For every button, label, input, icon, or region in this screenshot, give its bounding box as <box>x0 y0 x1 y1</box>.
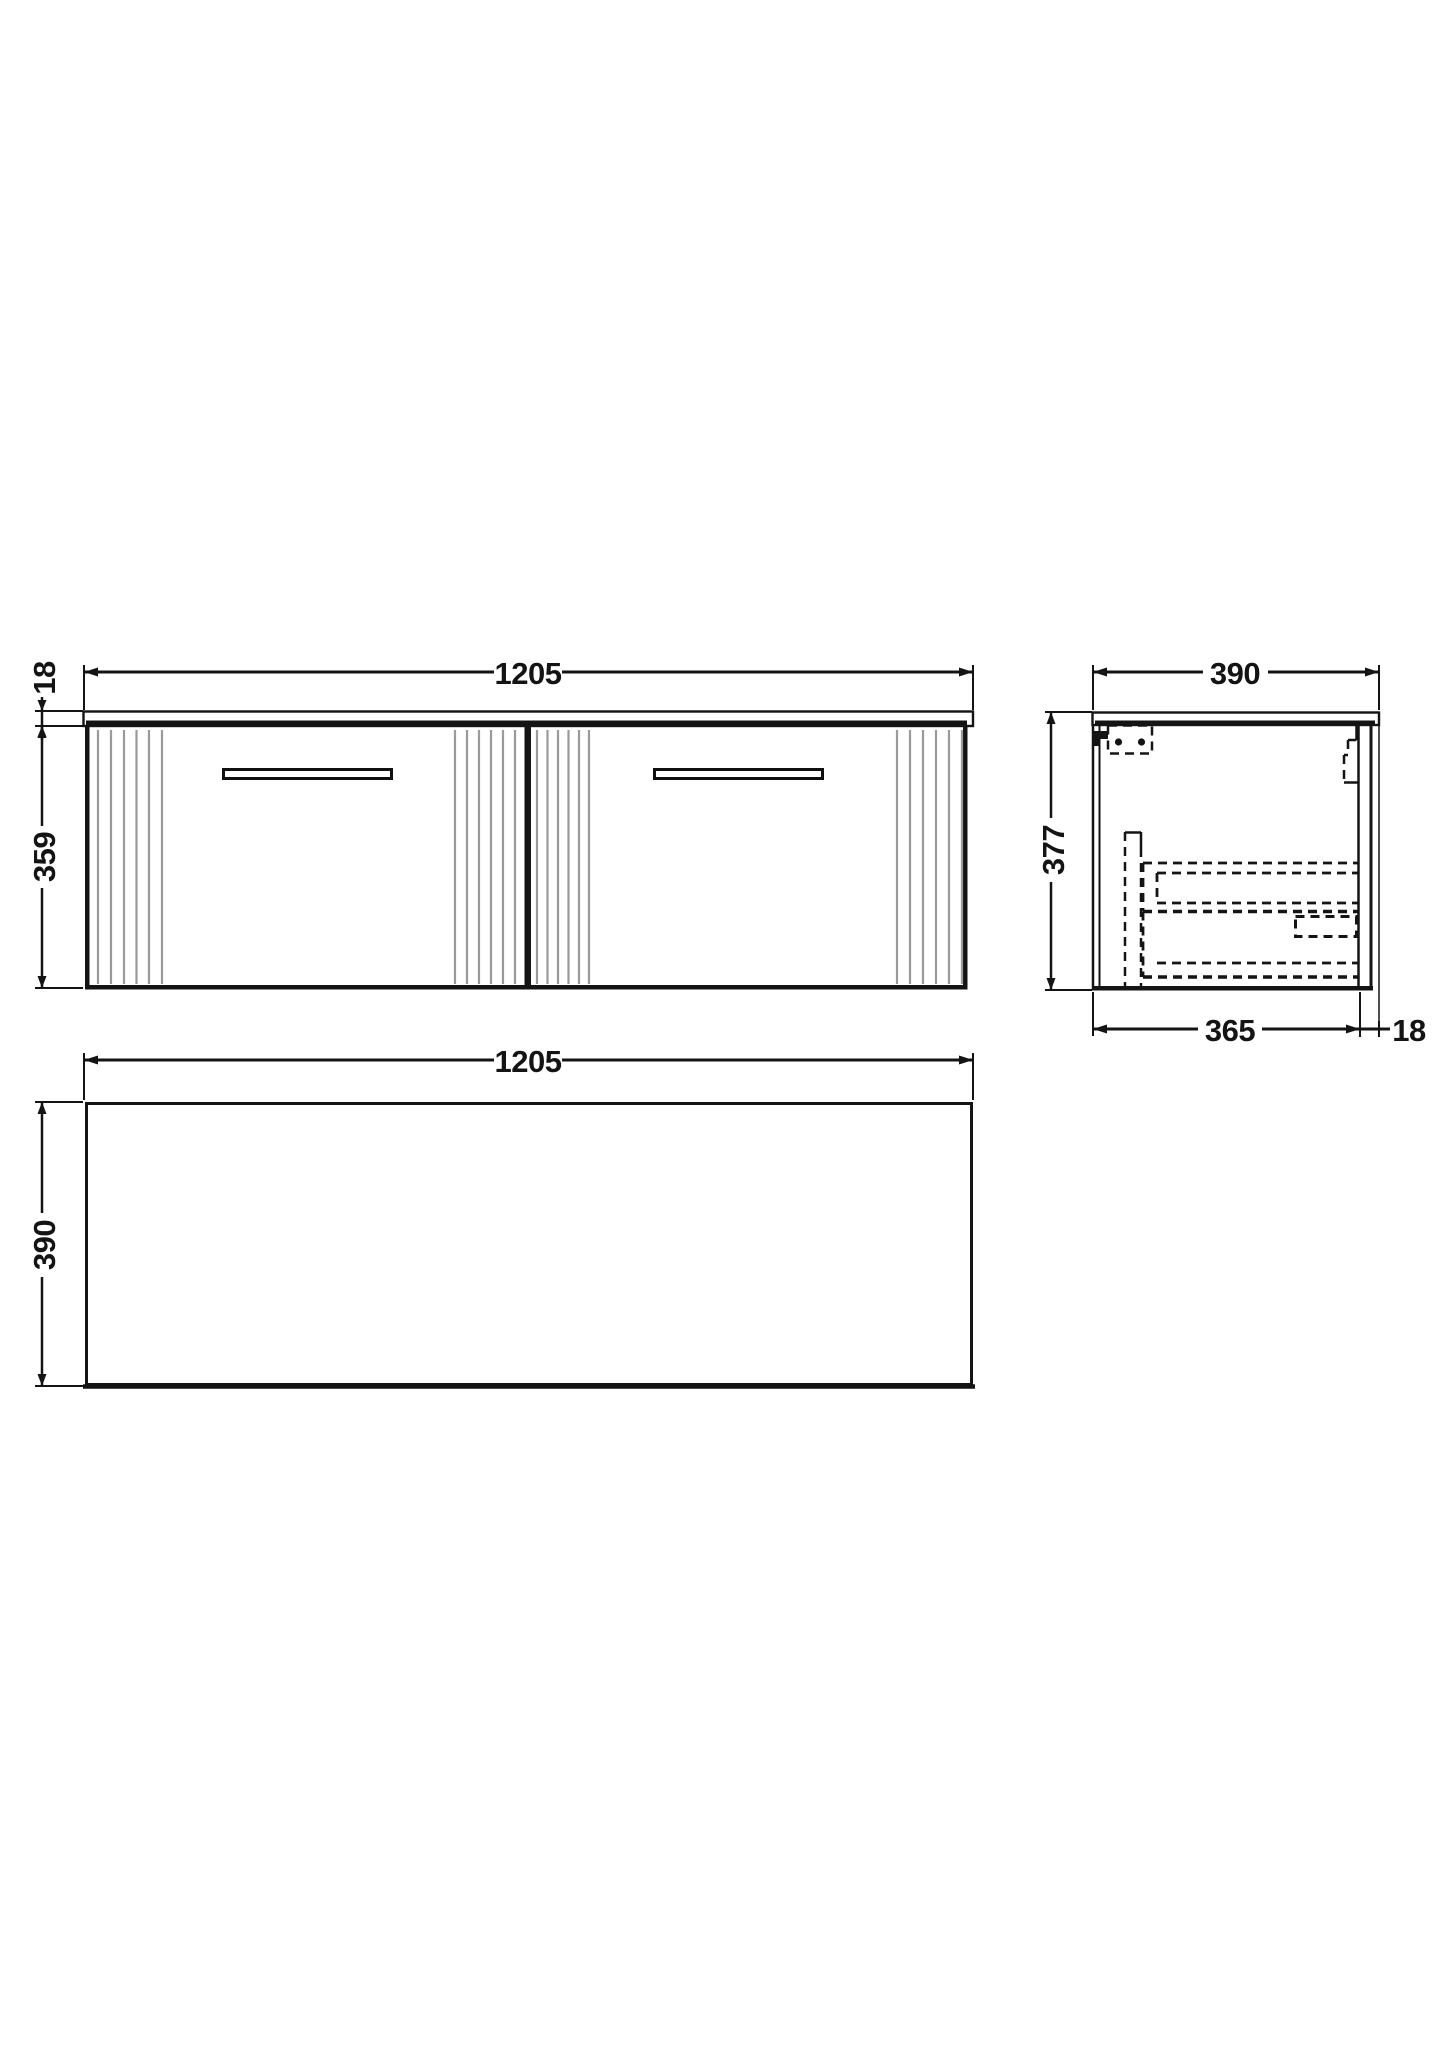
arrowhead <box>1047 712 1056 724</box>
technical-drawing-page: 1205 18 359 <box>0 0 1445 2045</box>
plan-dim-width: 1205 <box>84 1044 973 1100</box>
front-worktop <box>84 712 974 727</box>
side-drawer-runners <box>1143 863 1358 977</box>
side-dim-internal-depth: 365 18 <box>1093 992 1426 1048</box>
side-internal-depth-label: 365 <box>1205 1013 1255 1048</box>
side-back-thickness-label: 18 <box>1392 1013 1426 1048</box>
arrowhead <box>1047 978 1056 990</box>
fixing-dot <box>1138 738 1145 745</box>
arrowhead <box>1093 668 1107 677</box>
plan-view: 1205 390 <box>27 1044 975 1387</box>
side-drawer-front-profile <box>1125 832 1141 986</box>
side-worktop <box>1093 713 1380 726</box>
arrowhead <box>1365 668 1379 677</box>
cabinet-left-edge <box>85 727 90 989</box>
front-height-label: 359 <box>27 832 62 882</box>
arrowhead <box>1093 1025 1107 1034</box>
fixing-dot <box>1115 738 1122 745</box>
side-carcass <box>1092 725 1379 1036</box>
plan-worktop <box>83 1104 975 1387</box>
front-width-label: 1205 <box>495 656 562 691</box>
arrowhead <box>38 1374 47 1386</box>
front-dim-width: 1205 <box>84 656 973 710</box>
fluted-panel-center-right <box>537 730 589 984</box>
plan-depth-label: 390 <box>27 1220 62 1270</box>
cabinet-bottom-edge <box>1092 986 1373 991</box>
drawer-divider <box>525 727 532 989</box>
arrowhead <box>38 726 47 738</box>
plan-width-label: 1205 <box>495 1044 562 1079</box>
arrowhead <box>38 1102 47 1114</box>
vanity-unit-drawing-canvas: 1205 18 359 <box>0 0 1445 2045</box>
arrowhead <box>84 668 98 677</box>
arrowhead <box>38 700 47 711</box>
worktop-edge-shadow <box>86 721 967 727</box>
front-cabinet <box>85 727 968 990</box>
side-dim-depth: 390 <box>1093 656 1379 710</box>
front-worktop-thickness-label: 18 <box>27 661 62 695</box>
runner-block-dashed <box>1296 917 1357 937</box>
bracket-dashed-body <box>1108 726 1152 754</box>
plan-dim-depth: 390 <box>27 1102 83 1386</box>
right-drawer-handle <box>655 770 823 779</box>
arrowhead <box>959 1056 973 1065</box>
side-height-label: 377 <box>1036 825 1071 875</box>
worktop-plan-outline <box>87 1104 972 1385</box>
arrowhead <box>1346 1025 1360 1034</box>
side-dim-height: 377 <box>1036 712 1092 990</box>
arrowhead <box>959 668 973 677</box>
front-dim-height: 359 <box>27 726 83 988</box>
worktop-edge-shadow <box>1095 721 1375 726</box>
arrowhead <box>38 976 47 988</box>
side-wall-bracket-left <box>1093 726 1152 754</box>
fluted-panel-center-left <box>455 730 515 984</box>
cabinet-right-edge <box>963 727 968 989</box>
front-dim-worktop-thickness: 18 <box>27 661 83 740</box>
front-view: 1205 18 359 <box>27 656 973 990</box>
side-depth-label: 390 <box>1210 656 1260 691</box>
fluted-panel-left <box>98 730 162 984</box>
side-view: 390 377 <box>1036 656 1426 1048</box>
side-wall-bracket-right <box>1344 725 1359 783</box>
arrowhead <box>84 1056 98 1065</box>
left-drawer-handle <box>224 770 392 779</box>
fluted-panel-right <box>897 730 962 984</box>
